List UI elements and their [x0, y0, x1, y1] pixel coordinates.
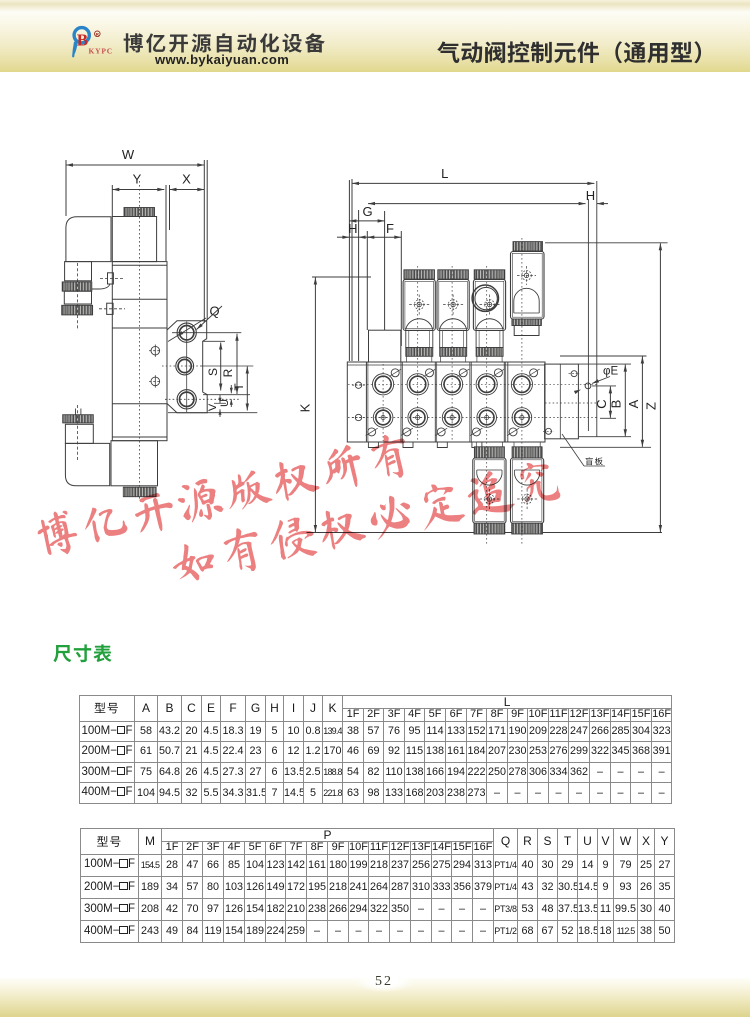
svg-text:T: T [232, 383, 246, 391]
svg-text:G: G [362, 204, 372, 219]
svg-text:B: B [609, 400, 624, 409]
svg-text:Z: Z [644, 402, 659, 410]
svg-text:V: V [207, 403, 219, 411]
svg-text:φE: φE [603, 366, 618, 378]
svg-text:L: L [441, 166, 448, 181]
svg-text:K: K [298, 403, 313, 412]
svg-text:H: H [348, 221, 357, 236]
svg-text:Y: Y [133, 172, 142, 187]
svg-text:C: C [594, 399, 609, 408]
svg-text:X: X [182, 172, 191, 187]
svg-text:S: S [206, 368, 220, 376]
svg-text:H: H [586, 188, 595, 203]
svg-text:W: W [122, 147, 135, 162]
svg-text:F: F [386, 221, 394, 236]
svg-text:R: R [221, 368, 235, 377]
svg-text:A: A [626, 399, 641, 408]
